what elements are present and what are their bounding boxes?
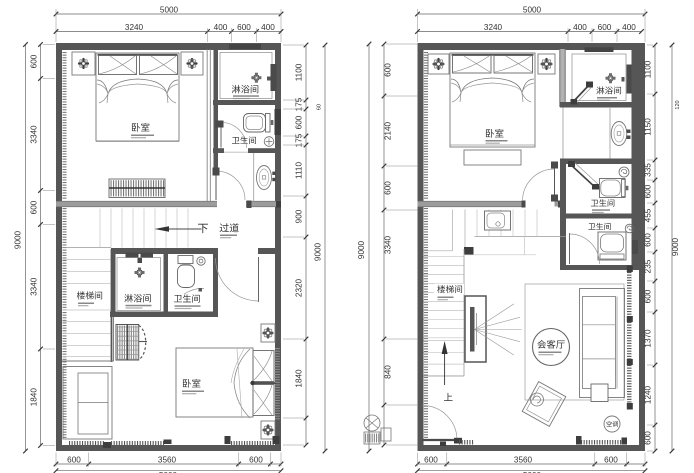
svg-text:600: 600 — [384, 181, 393, 195]
svg-text:335: 335 — [644, 163, 653, 177]
svg-text:600: 600 — [644, 289, 653, 303]
svg-text:1150: 1150 — [644, 118, 653, 136]
svg-text:3560: 3560 — [514, 455, 533, 464]
svg-text:9000: 9000 — [314, 242, 323, 261]
svg-text:600: 600 — [384, 63, 393, 77]
svg-text:900: 900 — [295, 209, 304, 223]
svg-text:600: 600 — [644, 184, 653, 198]
svg-text:9000: 9000 — [671, 237, 680, 256]
svg-text:600: 600 — [295, 115, 304, 129]
svg-text:1100: 1100 — [295, 63, 304, 81]
svg-text:600: 600 — [30, 200, 39, 214]
svg-text:1370: 1370 — [644, 329, 653, 348]
svg-text:400: 400 — [573, 23, 587, 32]
svg-text:3340: 3340 — [30, 277, 39, 296]
svg-text:400: 400 — [261, 23, 275, 32]
svg-text:840: 840 — [384, 365, 393, 379]
svg-text:600: 600 — [67, 455, 81, 464]
svg-text:2140: 2140 — [384, 121, 393, 140]
svg-text:1840: 1840 — [30, 388, 39, 407]
svg-text:600: 600 — [598, 23, 612, 32]
svg-text:1110: 1110 — [295, 162, 304, 179]
svg-text:5000: 5000 — [160, 6, 179, 15]
svg-text:3240: 3240 — [484, 23, 503, 32]
svg-text:3340: 3340 — [30, 125, 39, 144]
svg-text:9000: 9000 — [357, 240, 366, 259]
svg-text:455: 455 — [644, 208, 653, 222]
svg-text:9000: 9000 — [14, 230, 23, 249]
svg-text:2320: 2320 — [295, 278, 304, 297]
svg-text:1240: 1240 — [644, 385, 653, 404]
svg-text:3560: 3560 — [158, 455, 177, 464]
svg-text:3240: 3240 — [125, 23, 144, 32]
svg-text:3340: 3340 — [384, 235, 393, 254]
svg-text:235: 235 — [644, 259, 653, 273]
svg-text:600: 600 — [237, 23, 251, 32]
svg-text:600: 600 — [644, 233, 653, 247]
svg-text:600: 600 — [604, 455, 618, 464]
svg-text:1100: 1100 — [644, 60, 653, 78]
svg-text:60: 60 — [317, 104, 323, 110]
svg-text:400: 400 — [214, 23, 228, 32]
svg-text:5000: 5000 — [523, 6, 542, 15]
svg-text:1840: 1840 — [295, 369, 304, 388]
svg-text:600: 600 — [30, 54, 39, 68]
svg-text:120: 120 — [675, 100, 681, 109]
svg-text:600: 600 — [249, 455, 263, 464]
svg-text:600: 600 — [424, 455, 438, 464]
svg-text:400: 400 — [622, 23, 636, 32]
svg-text:600: 600 — [644, 431, 653, 445]
